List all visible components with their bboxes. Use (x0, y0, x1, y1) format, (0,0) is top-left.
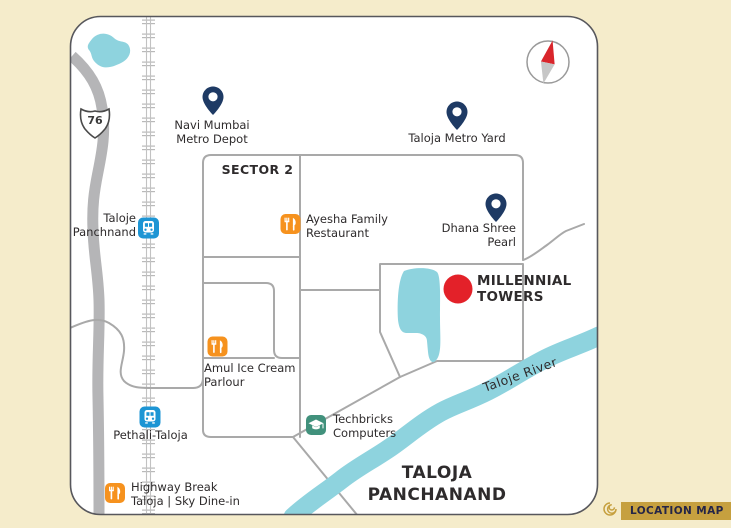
scroll-ornament-icon (601, 500, 619, 518)
sector-label: SECTOR 2 (210, 162, 305, 177)
location-map-badge-label: LOCATION MAP (630, 505, 724, 517)
station-label-pethali-taloja: Pethali-Taloja (98, 429, 203, 443)
map-canvas (0, 0, 731, 528)
project-name-label: MILLENNIAL TOWERS (477, 274, 587, 305)
location-map-page: 76 Navi Mumbai Metro Depot Taloja Metro … (0, 0, 731, 528)
restaurant-icon (105, 483, 125, 503)
restaurant-label-amul: Amul Ice Cream Parlour (204, 362, 314, 390)
project-marker-dot (444, 275, 473, 304)
location-map-badge: LOCATION MAP (621, 502, 731, 520)
institute-label-techbricks: Techbricks Computers (333, 413, 433, 441)
pin-label-taloja-metro-yard: Taloja Metro Yard (383, 132, 531, 146)
computer-institute-icon (306, 415, 326, 435)
restaurant-icon (281, 214, 301, 234)
railway-station-icon (138, 218, 159, 239)
highway-number-label: 76 (81, 114, 109, 127)
station-label-taloje-panchnand: Taloje Panchnand (58, 212, 136, 240)
area-label-taloja-panchanand: TALOJA PANCHANAND (337, 462, 537, 506)
restaurant-icon (208, 337, 228, 357)
pin-label-navi-mumbai-metro-depot: Navi Mumbai Metro Depot (152, 119, 272, 147)
restaurant-label-ayesha: Ayesha Family Restaurant (306, 213, 416, 241)
restaurant-label-highway-break: Highway Break Taloja | Sky Dine-in (131, 481, 301, 509)
pin-label-dhana-shree-pearl: Dhana Shree Pearl (420, 222, 516, 250)
railway-station-icon (140, 407, 161, 428)
